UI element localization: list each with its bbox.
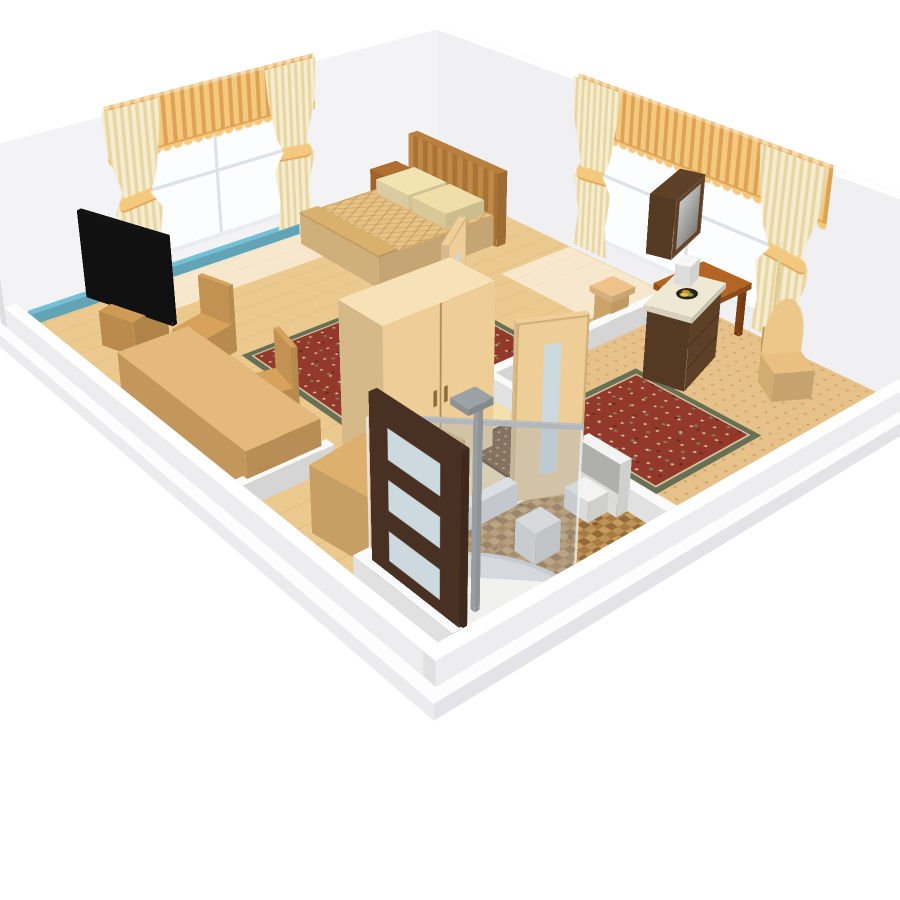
bed-face-s [497, 171, 508, 247]
dresser-face-w [674, 264, 691, 288]
dresser-face-w [642, 310, 690, 393]
accent-chair-face-s [771, 371, 815, 403]
floorplan-3d-view [0, 0, 900, 900]
